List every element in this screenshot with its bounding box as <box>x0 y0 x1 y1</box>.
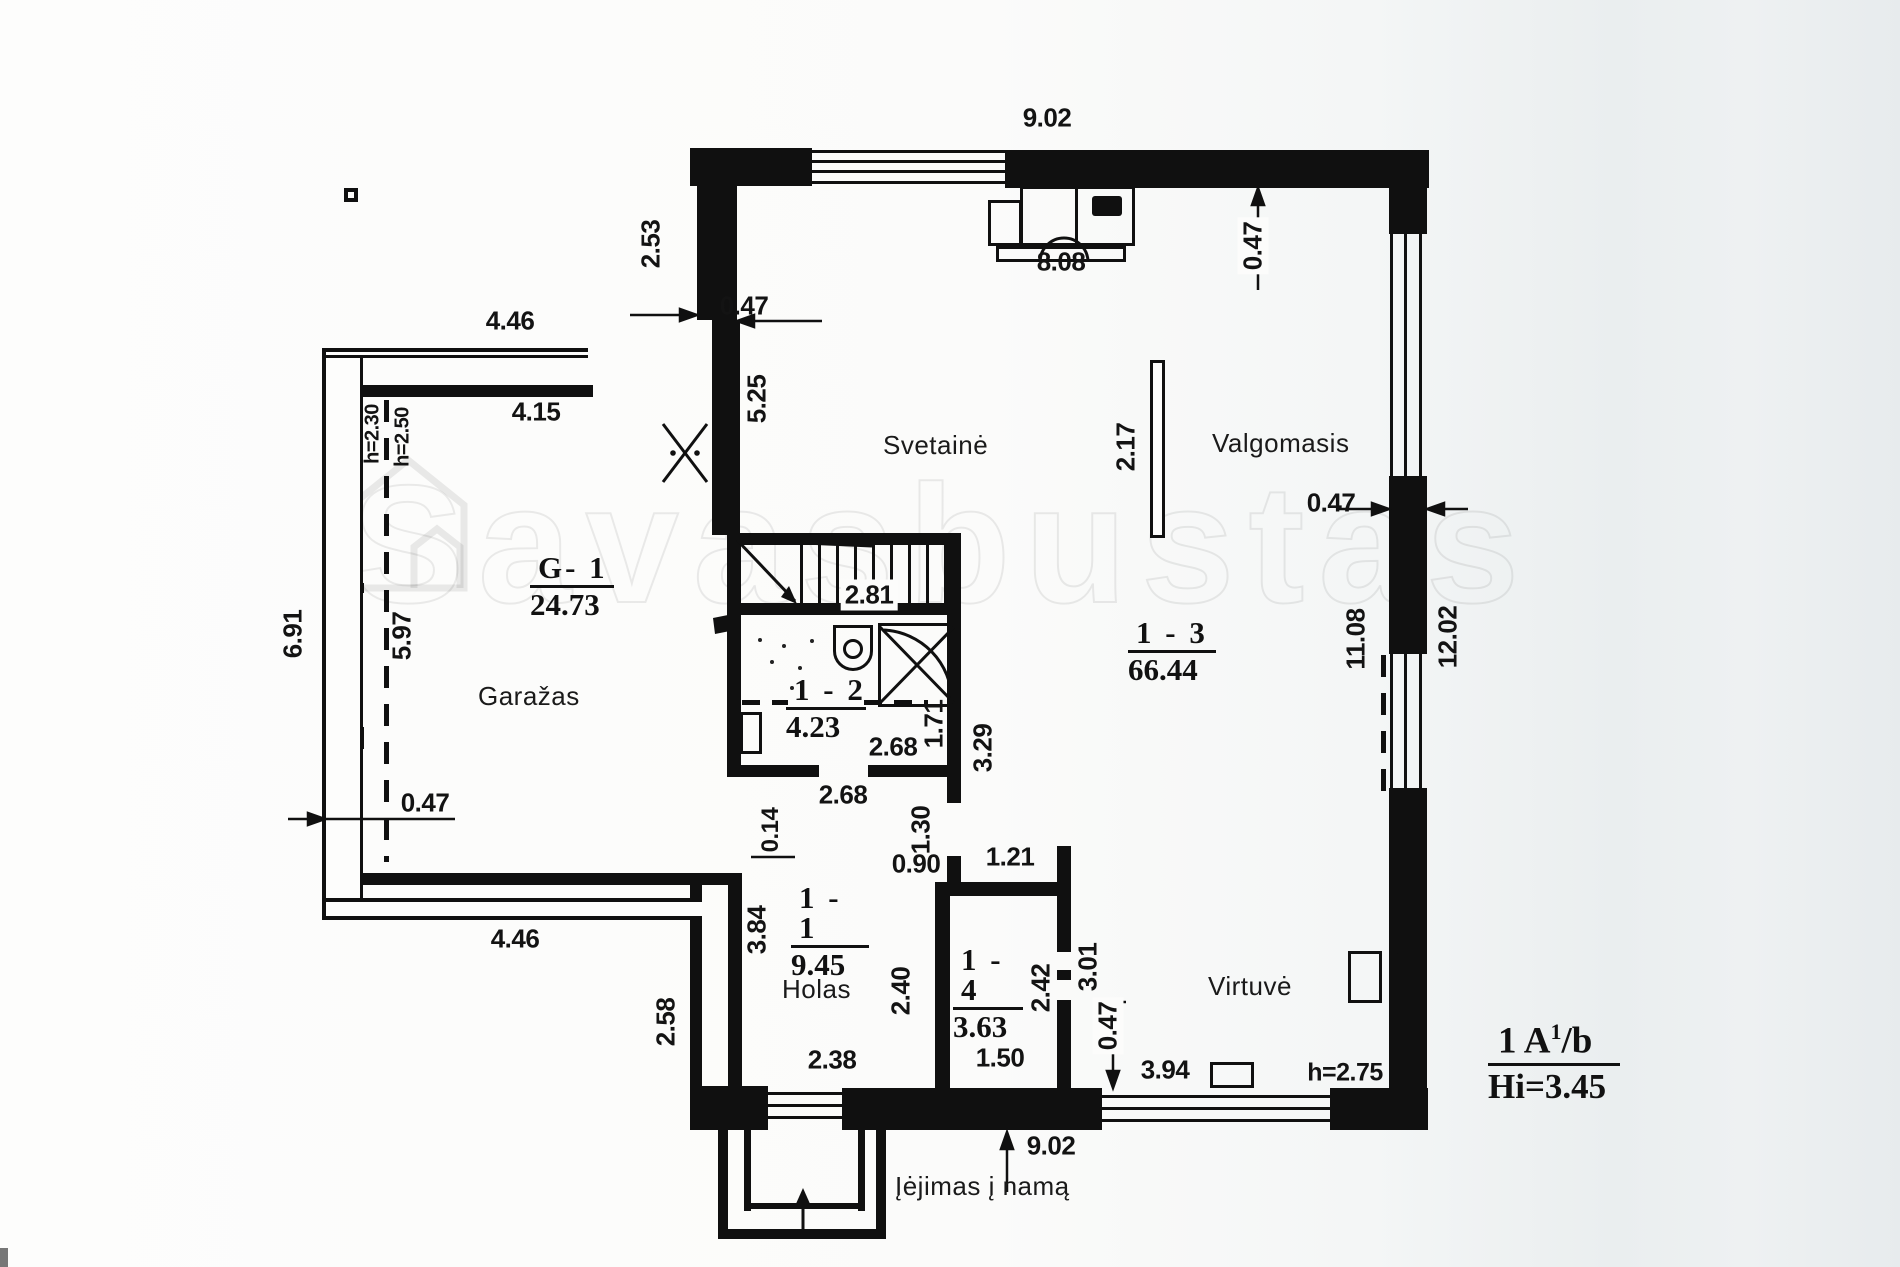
dimension-label: 8.08 <box>1037 247 1086 278</box>
dimension-label: 4.15 <box>512 397 561 428</box>
dimension-label: 9.02 <box>1027 1131 1076 1162</box>
dimension-label: 6.91 <box>278 610 309 659</box>
dimension-label: 9.02 <box>1023 103 1072 134</box>
dimension-label: 0.47 <box>1238 218 1269 275</box>
dimension-label: 2.68 <box>869 732 918 763</box>
dimension-label: 0.47 <box>1307 488 1356 519</box>
dimension-label: 2.53 <box>636 220 667 269</box>
dimension-label: 0.47 <box>401 788 450 819</box>
dimension-label: 2.40 <box>886 967 917 1016</box>
dimension-label: 4.46 <box>486 306 535 337</box>
dimension-label: 3.01 <box>1073 943 1104 992</box>
dimension-label: h=2.75 <box>1307 1059 1383 1088</box>
dimension-label: 1.71 <box>919 700 950 749</box>
dimension-label: 0.47 <box>720 291 769 322</box>
dimension-label: 2.68 <box>819 780 868 811</box>
dimension-label: 2.38 <box>808 1045 857 1076</box>
dimension-label: 3.29 <box>968 724 999 773</box>
dimension-label: 1.30 <box>906 806 937 855</box>
dimension-labels-layer: 9.024.460.478.084.150.472.812.682.680.47… <box>0 0 1900 1267</box>
dimension-label: 5.97 <box>387 612 418 661</box>
dimension-label: 0.47 <box>1093 998 1124 1055</box>
floor-plan: Savasbustas <box>0 0 1900 1267</box>
dimension-label: 5.25 <box>742 375 773 424</box>
dimension-label: 2.17 <box>1111 423 1142 472</box>
dimension-label: h=2.50 <box>392 407 415 467</box>
dimension-label: 3.84 <box>742 906 773 955</box>
dimension-label: h=2.30 <box>362 404 385 464</box>
dimension-label: 11.08 <box>1341 608 1372 669</box>
dimension-label: 2.42 <box>1026 964 1057 1013</box>
dimension-label: 2.58 <box>651 998 682 1047</box>
dimension-label: 4.46 <box>491 924 540 955</box>
dimension-label: 0.14 <box>757 808 785 853</box>
dimension-label: 1.21 <box>986 842 1035 873</box>
dimension-label: 12.02 <box>1433 606 1464 669</box>
dimension-label: 1.50 <box>976 1043 1025 1074</box>
dimension-label: 2.81 <box>841 580 898 611</box>
dimension-label: 3.94 <box>1141 1055 1190 1086</box>
